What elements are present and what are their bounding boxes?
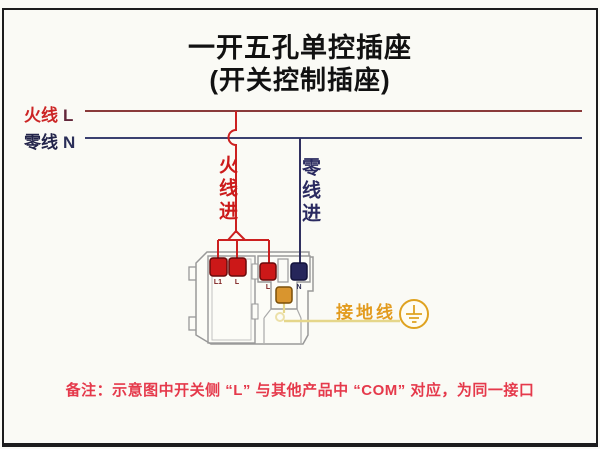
live-wire-name: 火线 <box>24 106 58 125</box>
live-in-label: 火线进 <box>217 155 236 224</box>
page-subtitle: (开关控制插座) <box>0 60 600 97</box>
neutral-wire-letter: N <box>63 133 75 152</box>
schematic-page: L1 L L N 一开五孔单控插座 (开关控制插座) 火线L 零线N 火线进 零… <box>0 0 600 449</box>
terminal-socket-L <box>260 263 276 280</box>
terminal-switch-L1 <box>210 258 227 276</box>
module-tab-top <box>252 264 258 279</box>
terminal-socket-E <box>276 287 292 303</box>
terminal-socket-N <box>291 263 307 280</box>
neutral-wire-label: 零线N <box>24 128 75 153</box>
ground-wire-label: 接地线 <box>336 298 396 323</box>
earth-symbol-icon <box>400 300 428 328</box>
live-wire-label: 火线L <box>24 101 73 126</box>
terminal-label-L-switch: L <box>235 279 240 286</box>
plug-slot <box>278 259 288 282</box>
module-tab-bottom <box>252 304 258 319</box>
neutral-in-label: 零线进 <box>300 157 319 226</box>
terminal-label-N: N <box>296 284 301 291</box>
terminal-label-L-socket: L <box>266 284 271 291</box>
terminal-switch-L <box>229 258 246 276</box>
neutral-wire-name: 零线 <box>24 133 58 152</box>
footnote: 备注：示意图中开关侧 “L” 与其他产品中 “COM” 对应，为同一接口 <box>0 379 600 400</box>
terminal-label-L1: L1 <box>214 279 222 286</box>
live-wire-letter: L <box>63 106 73 125</box>
